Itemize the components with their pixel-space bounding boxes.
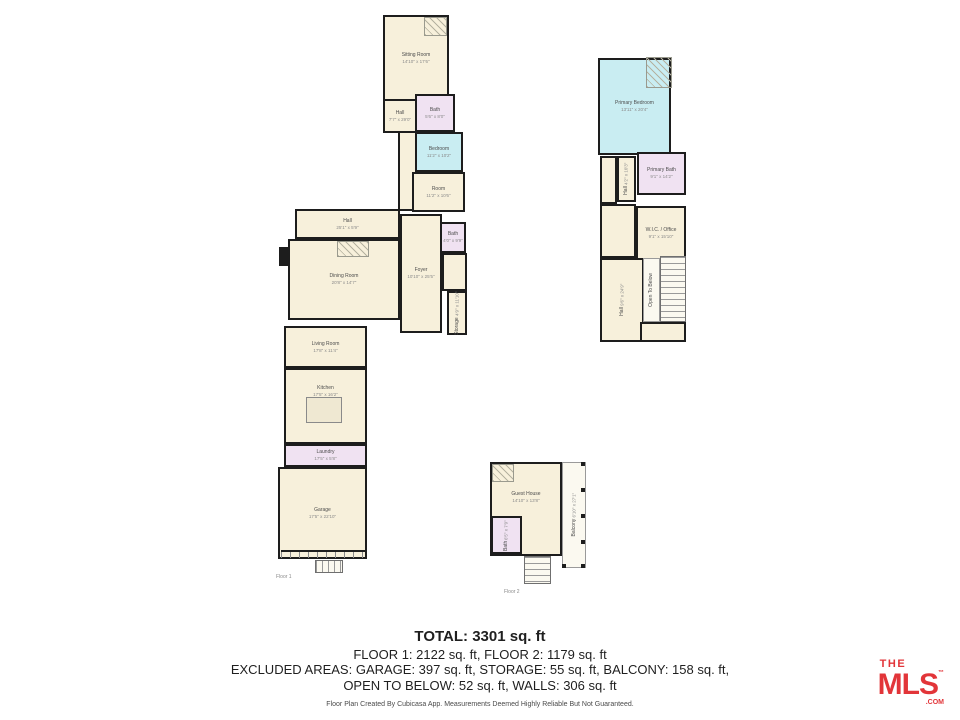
floor1-label: Floor 1: [276, 574, 292, 580]
floor2-filler: [640, 322, 686, 342]
room-name-label: Bedroom: [429, 146, 449, 152]
room-room: Room 11'2" x 10'6": [412, 172, 465, 212]
room-name-label: Kitchen: [317, 385, 334, 391]
room-name-label: Bath: [430, 107, 440, 113]
room-dims-label: 9'1" x 15'10": [649, 234, 674, 240]
room-dims-label: 25'1" x 5'9": [336, 225, 358, 231]
room-name-label: Living Room: [312, 341, 340, 347]
room-name-label: Hall: [623, 186, 629, 195]
floorplan-page: Sitting Room 14'10" x 17'6" Hall 7'7" x …: [0, 0, 960, 720]
hatch-guest-corner: [492, 464, 514, 482]
room-dims-label: 20'8" x 14'7": [332, 280, 357, 286]
room-dims-label: 11'2" x 10'2": [427, 153, 451, 159]
room-name-label: Room: [432, 186, 445, 192]
excluded-areas-line-1: EXCLUDED AREAS: GARAGE: 397 sq. ft, STOR…: [0, 662, 960, 677]
room-dims-label: 6'5" x 7'9": [504, 520, 510, 540]
room-name-label: Laundry: [316, 449, 334, 455]
room-dims-label: 9'6" x 24'9": [619, 284, 625, 306]
garage-door: [281, 550, 365, 558]
room-bath-upper: Bath 5'6" x 8'0": [415, 94, 455, 132]
room-name-label: Primary Bedroom: [615, 100, 654, 106]
room-storage: Storage 4'9" x 11'10": [447, 291, 467, 335]
balcony-post: [581, 462, 585, 466]
room-dims-label: 17'5" x 22'10": [309, 514, 336, 520]
room-dims-label: 17'8" x 11'4": [313, 348, 337, 354]
room-garage: Garage 17'5" x 22'10": [278, 467, 367, 559]
room-name-label: Hall: [343, 218, 352, 224]
room-primary-bath: Primary Bath 9'1" x 14'2": [637, 152, 686, 195]
hall-stairs: [337, 241, 369, 257]
balcony-post: [562, 564, 566, 568]
room-name-label: Sitting Room: [402, 52, 431, 58]
balcony-post: [581, 540, 585, 544]
room-name-label: Garage: [314, 507, 331, 513]
room-dims-label: 17'5" x 5'8": [314, 456, 336, 462]
room-name-label: W.I.C. / Office: [646, 227, 677, 233]
room-name-label: Open To Below: [648, 273, 654, 307]
room-name-label: Hall: [619, 307, 625, 316]
room-name-label: Hall: [396, 110, 405, 116]
guest-stairs: [524, 556, 551, 584]
room-dims-label: 9'1" x 14'2": [650, 174, 672, 180]
floor-areas-line: FLOOR 1: 2122 sq. ft, FLOOR 2: 1179 sq. …: [0, 647, 960, 662]
room-dims-label: 6'10" x 27'1": [571, 493, 577, 518]
room-dims-label: 4'0" x 9'9": [443, 238, 463, 244]
room-dims-label: 10'10" x 25'5": [407, 274, 434, 280]
balcony-post: [581, 488, 585, 492]
balcony-post: [581, 564, 585, 568]
room-hall-upper: Hall 7'7" x 29'0": [383, 99, 417, 133]
room-name-label: Storage: [454, 317, 460, 335]
total-area: TOTAL: 3301 sq. ft: [0, 628, 960, 645]
kitchen-island: [306, 397, 342, 423]
room-wic-office: W.I.C. / Office 9'1" x 15'10": [636, 206, 686, 260]
hatch-sitting-corner: [424, 17, 447, 36]
room-open-to-below: Open To Below: [643, 258, 660, 322]
room-closet-b: [600, 204, 636, 258]
room-dims-label: 5'6" x 8'0": [425, 114, 445, 120]
room-name-label: Bath: [448, 231, 458, 237]
room-name-label: Foyer: [415, 267, 428, 273]
themls-logo: THE MLS™ .COM: [878, 659, 944, 706]
logo-mls: MLS: [878, 668, 938, 701]
room-bedroom: Bedroom 11'2" x 10'2": [415, 132, 463, 172]
room-name-label: Balcony: [571, 519, 577, 537]
hatch-primary-corner: [646, 57, 672, 88]
floor2-stairs: [660, 256, 686, 322]
room-name-label: Primary Bath: [647, 167, 676, 173]
room-living-room: Living Room 17'8" x 11'4": [284, 326, 367, 368]
room-dims-label: 4'2" x 10'3": [624, 163, 630, 185]
room-foyer: Foyer 10'10" x 25'5": [400, 214, 442, 333]
disclaimer: Floor Plan Created By Cubicasa App. Meas…: [0, 701, 960, 708]
room-hall-lower: Hall 9'6" x 24'9": [600, 258, 644, 342]
room-bath-middle: Bath 4'0" x 9'9": [440, 222, 466, 253]
guest-floor-label: Floor 2: [504, 589, 520, 595]
room-name-label: Guest House: [511, 491, 540, 497]
room-dims-label: 14'10" x 17'6": [402, 59, 429, 65]
room-dims-label: 4'9" x 11'10": [454, 292, 460, 316]
room-dims-label: 11'2" x 10'6": [426, 193, 450, 199]
room-closet-a: [600, 156, 617, 204]
room-hall-main: Hall 25'1" x 5'9": [295, 209, 400, 239]
room-dims-label: 13'11" x 20'4": [621, 107, 648, 113]
logo-trademark-icon: ™: [938, 670, 944, 676]
room-dims-label: 7'7" x 29'0": [389, 117, 411, 123]
room-name-label: Dining Room: [330, 273, 359, 279]
area-summary: TOTAL: 3301 sq. ft FLOOR 1: 2122 sq. ft,…: [0, 628, 960, 708]
garage-steps: [315, 560, 343, 573]
balcony-post: [581, 514, 585, 518]
room-closet-right: [442, 253, 467, 291]
room-name-label: Bath: [503, 540, 509, 550]
room-laundry: Laundry 17'5" x 5'8": [284, 444, 367, 467]
room-hall-small: Hall 4'2" x 10'3": [617, 156, 636, 202]
chimney-block-left: [279, 247, 288, 266]
excluded-areas-line-2: OPEN TO BELOW: 52 sq. ft, WALLS: 306 sq.…: [0, 678, 960, 693]
room-guest-bath: Bath 6'5" x 7'9": [491, 516, 522, 554]
room-dims-label: 14'10" x 13'8": [512, 498, 539, 504]
